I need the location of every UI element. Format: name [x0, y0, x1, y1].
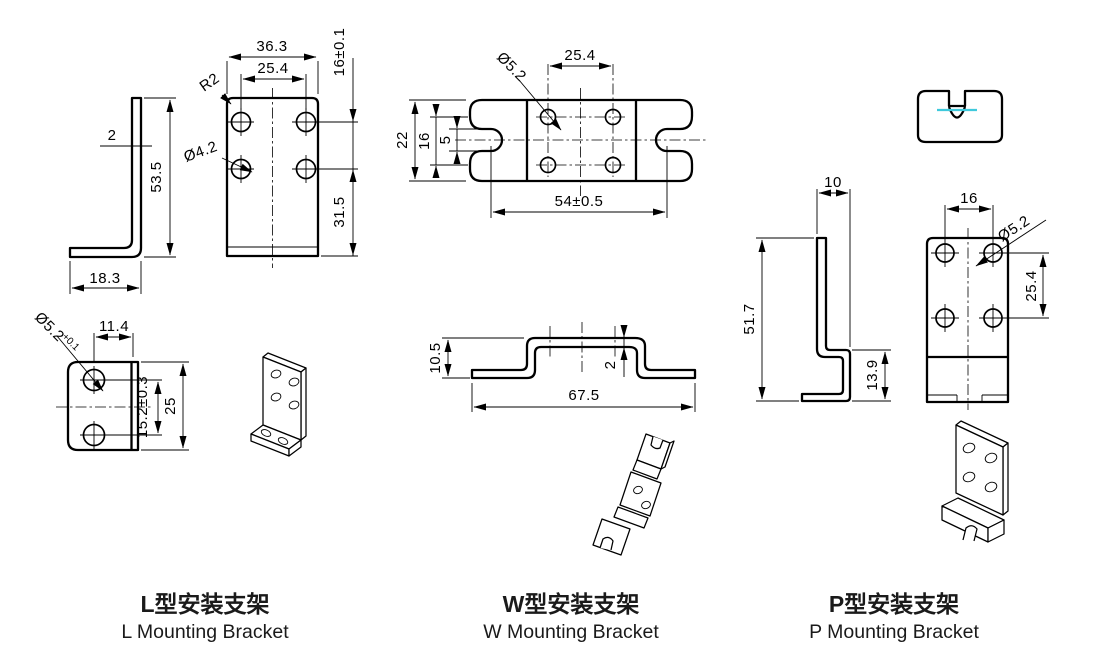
l-bracket-front-view: 36.3 25.4 16±0.1 31.5 R2 Ø4.2 — [182, 28, 358, 268]
p-bracket-front-view: 16 Ø5.2 25.4 — [927, 190, 1049, 410]
dim-l-front-hole-spacing: 25.4 — [257, 60, 288, 77]
dim-w-top-slot-spacing: 54±0.5 — [555, 193, 604, 210]
l-bracket-bottom-view: 11.4 Ø5.2 +0.1 15.2±0.3 25 — [31, 309, 189, 450]
p-bracket-side-view: 10 51.7 13.9 — [741, 174, 891, 401]
w-side-outline — [472, 338, 695, 378]
dim-l-front-corner-radius: R2 — [197, 70, 223, 96]
p-bracket-title-cn: P型安装支架 — [829, 591, 959, 617]
dim-l-bottom-hole-spacing: 15.2±0.3 — [134, 376, 151, 438]
l-bracket-title-en: L Mounting Bracket — [121, 621, 289, 643]
dim-p-side-height: 51.7 — [741, 303, 758, 334]
w-bracket-title-cn: W型安装支架 — [503, 591, 640, 617]
dim-p-side-foot-height: 13.9 — [864, 359, 881, 390]
w-bracket-title-en: W Mounting Bracket — [483, 621, 659, 643]
w-bracket-top-view: 22 16 5 25.4 Ø5.2 54±0.5 — [394, 47, 708, 218]
w-bracket-side-view: 10.5 2 67.5 — [427, 322, 695, 412]
dim-w-top-slot-width: 5 — [437, 136, 454, 145]
dim-p-front-hole-spacing: 16 — [960, 190, 978, 207]
dim-l-bottom-offset: 11.4 — [99, 318, 129, 335]
dim-w-side-height: 10.5 — [427, 342, 444, 373]
technical-drawing: 2 53.5 18.3 36.3 25. — [0, 0, 1115, 664]
dim-w-side-width: 67.5 — [568, 387, 599, 404]
dim-l-front-hole-diameter: Ø4.2 — [182, 138, 220, 166]
dim-p-front-row-spacing: 25.4 — [1023, 270, 1040, 301]
dim-l-front-width: 36.3 — [256, 38, 287, 55]
l-bracket-title-cn: L型安装支架 — [140, 591, 269, 617]
l-bracket-3d-view — [251, 353, 306, 456]
dim-w-top-hole-spacing: 25.4 — [564, 47, 595, 64]
dim-l-thickness: 2 — [108, 127, 117, 144]
p-side-outline — [802, 238, 850, 401]
dim-l-height: 53.5 — [148, 161, 165, 192]
dim-l-front-lower-height: 31.5 — [331, 196, 348, 227]
dim-p-front-hole-diameter: Ø5.2 — [995, 212, 1033, 245]
p-bracket-top-view — [918, 91, 1002, 142]
w-bracket-3d-view — [593, 434, 674, 555]
l-side-outline — [70, 98, 141, 257]
dim-w-top-hole-diameter: Ø5.2 — [493, 49, 529, 85]
dim-l-base-width: 18.3 — [89, 270, 120, 287]
dim-l-bottom-hole-tolerance: +0.1 — [59, 331, 81, 353]
p-front-outline — [927, 238, 1008, 402]
dim-p-side-top-width: 10 — [824, 174, 842, 191]
dim-w-top-row-spacing: 16 — [416, 132, 433, 150]
drawing-page: 2 53.5 18.3 36.3 25. — [0, 0, 1115, 664]
l-bracket-side-view: 2 53.5 18.3 — [70, 98, 176, 294]
w-top-outline — [470, 100, 692, 181]
dim-l-bottom-width: 25 — [162, 397, 179, 415]
dim-w-side-thickness: 2 — [602, 361, 619, 370]
l-side-dimension-lines — [70, 98, 176, 294]
p-bracket-title-en: P Mounting Bracket — [809, 621, 979, 643]
bracket-titles: L型安装支架 L Mounting Bracket W型安装支架 W Mount… — [121, 591, 979, 643]
p-bracket-3d-view — [942, 421, 1008, 542]
dim-w-top-height: 22 — [394, 131, 411, 149]
dim-l-front-row-spacing: 16±0.1 — [331, 28, 348, 77]
